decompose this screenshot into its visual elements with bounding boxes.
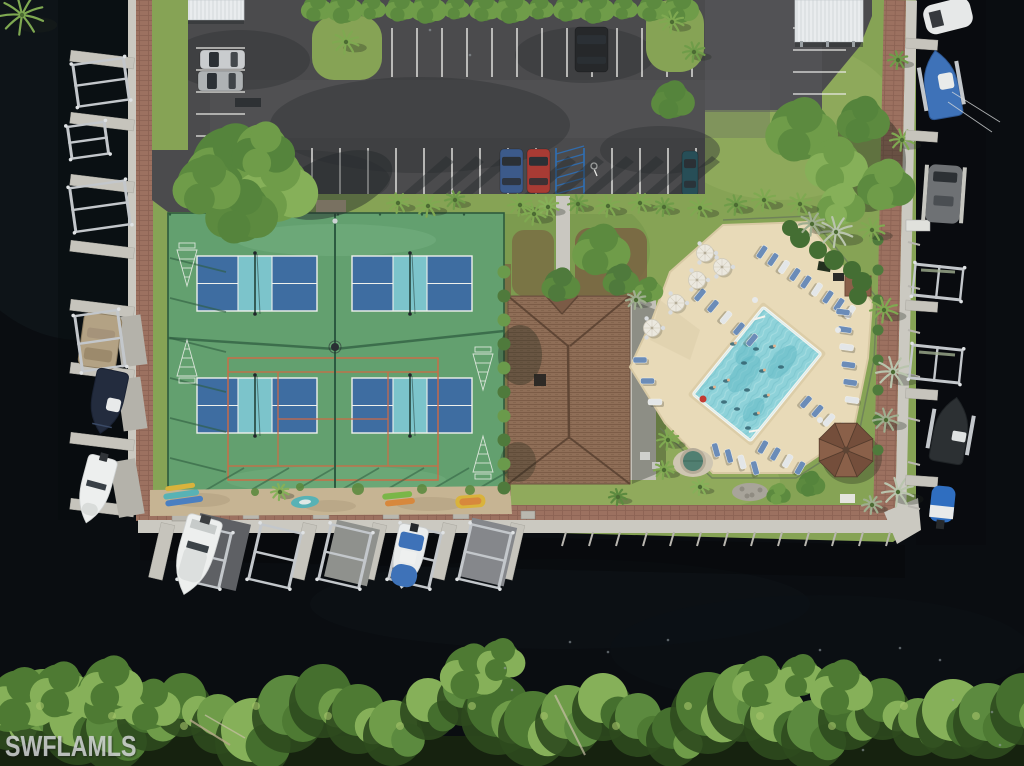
side-table — [752, 297, 758, 303]
fence-post — [169, 213, 171, 215]
canopy — [532, 7, 544, 19]
carport-leg — [852, 41, 855, 47]
palm-crown — [616, 495, 620, 499]
net-post — [408, 434, 412, 438]
hedge-bush — [873, 445, 884, 456]
car-body — [198, 71, 243, 91]
swimmer-head — [767, 394, 770, 397]
canopy — [801, 483, 814, 496]
palm-crown — [518, 203, 522, 207]
palm-crown — [734, 203, 738, 207]
palm-crown — [896, 58, 900, 62]
canopy — [558, 7, 572, 21]
canopy — [831, 183, 855, 207]
water-speck — [819, 649, 822, 652]
car-windshield — [209, 52, 219, 67]
car-rear-glass — [231, 52, 238, 67]
canopy — [184, 184, 215, 215]
canopy — [785, 675, 807, 697]
pickleball-court — [352, 373, 472, 438]
swimmer — [741, 361, 747, 365]
canopy — [582, 249, 608, 275]
main-ridge — [568, 345, 569, 439]
canopy — [218, 211, 251, 244]
patio-chair — [697, 241, 701, 245]
pickleball-court — [352, 251, 472, 316]
dock-finger — [905, 475, 938, 487]
carport-leg — [826, 41, 829, 47]
palm-crown — [891, 370, 895, 374]
canopy — [491, 638, 515, 662]
clubhouse-roof — [498, 296, 666, 484]
canopy — [821, 687, 850, 716]
swimmer — [745, 426, 751, 430]
fence-post — [379, 213, 381, 215]
carport-roof — [795, 0, 863, 42]
palm-crown — [662, 468, 666, 472]
chair-body — [641, 378, 655, 384]
hedge-bush — [498, 386, 511, 399]
brick-path-west — [136, 0, 153, 510]
water-speck — [952, 699, 955, 702]
swimmer — [734, 407, 740, 411]
umbrella-pole — [675, 302, 678, 305]
swimmer-body — [741, 361, 747, 365]
canopy-highlight — [900, 702, 908, 710]
aerial-photo-canvas: SWFLAMLS — [0, 0, 1024, 766]
palm-crown — [426, 204, 430, 208]
hedge-bush — [498, 482, 511, 495]
canopy — [805, 471, 819, 485]
patio-chair — [661, 326, 665, 330]
lift-bunk — [921, 270, 955, 272]
canopy — [548, 284, 566, 302]
water-speck — [939, 659, 942, 662]
net-post — [408, 373, 412, 377]
side-table — [835, 327, 841, 333]
patio-chair — [644, 316, 648, 320]
canopy — [825, 204, 847, 226]
palm-crown — [698, 206, 702, 210]
swimmer-head — [734, 342, 737, 345]
water-speck — [511, 689, 514, 692]
patio-chair — [706, 278, 710, 282]
water-speck — [569, 641, 572, 644]
swimmer — [744, 388, 750, 392]
canopy — [98, 655, 129, 686]
palm-crown — [870, 503, 874, 507]
canopy — [306, 7, 320, 21]
palm-crown — [692, 50, 696, 54]
silver-car — [198, 71, 243, 91]
canopy — [139, 679, 168, 708]
hedge-bush — [498, 458, 511, 471]
car-body — [500, 149, 523, 193]
patio-chair — [689, 287, 693, 291]
swimmer — [778, 365, 784, 369]
palm-crown — [634, 298, 638, 302]
rock — [740, 487, 745, 492]
car-windshield — [684, 159, 696, 168]
canopy-highlight — [396, 722, 404, 730]
net-post — [408, 251, 412, 255]
canopy — [874, 159, 903, 188]
palm-crown — [900, 138, 904, 142]
fence-post — [421, 213, 423, 215]
hedge-bush — [873, 385, 884, 396]
palm-crown — [278, 490, 282, 494]
palm-crown — [698, 485, 702, 489]
palm-crown — [606, 204, 610, 208]
lounge-chair — [641, 378, 657, 386]
canopy — [474, 7, 488, 21]
canopy-highlight — [36, 702, 44, 710]
canopy — [448, 7, 460, 19]
rock-bed — [732, 483, 768, 501]
dark-suv — [575, 27, 608, 72]
palm-crown — [882, 308, 886, 312]
lounge-chair — [648, 399, 664, 407]
canopy — [192, 154, 226, 188]
hedge-bush — [873, 325, 884, 336]
net-post — [408, 312, 412, 316]
court-light — [332, 218, 337, 223]
dock-finger — [905, 38, 938, 50]
pontoon-boat — [921, 164, 967, 225]
mls-watermark: SWFLAMLS — [5, 731, 136, 764]
swimmer-body — [734, 407, 740, 411]
palm-crown — [810, 222, 814, 226]
console-cover — [937, 72, 955, 90]
ac-unit — [640, 452, 650, 460]
canopy — [609, 279, 626, 296]
canopy-highlight — [468, 702, 476, 710]
palm-crown — [453, 198, 457, 202]
canopy — [485, 659, 507, 681]
palm-crown — [884, 418, 888, 422]
rock — [745, 494, 750, 499]
dock-finger — [905, 388, 938, 400]
hedge-bush — [824, 250, 844, 270]
swimmer-body — [744, 388, 750, 392]
palm-crown — [396, 201, 400, 205]
net-post — [253, 251, 257, 255]
canopy-highlight — [756, 712, 764, 720]
car-body — [527, 149, 550, 193]
car-body — [200, 50, 245, 69]
swimmer-head — [713, 386, 716, 389]
beach-shrub — [352, 483, 364, 495]
canopy-highlight — [324, 712, 332, 720]
canopy — [643, 277, 657, 291]
water-speck — [667, 639, 670, 642]
canopy — [364, 7, 376, 19]
dock-finger — [905, 130, 938, 142]
rock — [750, 493, 755, 498]
net-post — [253, 434, 257, 438]
car-rear-glass — [577, 57, 606, 64]
palm-crown — [896, 490, 900, 494]
swimmer-head — [763, 369, 766, 372]
patio-chair — [644, 335, 648, 339]
car-rear-glass — [502, 178, 521, 185]
canopy-highlight — [612, 722, 620, 730]
canopy — [451, 671, 480, 700]
canopy — [242, 149, 271, 178]
canopy-highlight — [108, 712, 116, 720]
aerial-scene — [0, 0, 1024, 766]
swimmer-head — [773, 345, 776, 348]
court-fixture — [331, 343, 339, 351]
car-rear-glass — [229, 73, 236, 89]
canopy — [771, 494, 782, 505]
patio-chair — [689, 268, 693, 272]
canopy — [846, 119, 870, 143]
patio-chair — [697, 260, 701, 264]
beach-shrub — [251, 488, 259, 496]
fence-post — [463, 213, 465, 215]
palm-crown — [798, 202, 802, 206]
canopy — [250, 121, 281, 152]
canopy — [791, 654, 815, 678]
canopy — [749, 656, 778, 685]
car-body — [575, 27, 608, 72]
canopy-highlight — [684, 702, 692, 710]
hedge-bush — [498, 410, 511, 423]
canopy — [664, 80, 686, 102]
hedge-bush — [498, 266, 511, 279]
water-speck — [991, 711, 994, 714]
patio-chair — [714, 255, 718, 259]
water-speck — [862, 749, 865, 752]
palm-crown — [638, 201, 642, 205]
canopy — [659, 99, 679, 119]
canopy — [867, 184, 893, 210]
canopy — [616, 7, 628, 19]
canopy — [91, 683, 120, 712]
lounge-chair — [633, 357, 649, 365]
canopy — [333, 7, 350, 24]
canopy — [774, 483, 786, 495]
pickleball-court — [197, 251, 317, 316]
canopy — [417, 7, 434, 24]
swimmer-head — [757, 412, 760, 415]
pickleball-court-complex — [168, 213, 514, 505]
palm-crown — [666, 438, 670, 442]
water-speck — [899, 647, 902, 650]
water-speck — [607, 651, 610, 654]
carport-shadow — [186, 20, 244, 24]
palm-crown — [670, 20, 674, 24]
hedge-bush — [873, 265, 884, 276]
chair-body — [633, 357, 647, 363]
tree-shadow-on-roof — [498, 325, 542, 385]
patio-chair — [714, 251, 718, 255]
chair-body — [648, 399, 662, 405]
umbrella-pole — [696, 279, 699, 282]
dock-box — [840, 494, 855, 503]
side-table — [817, 417, 823, 423]
canopy — [828, 659, 859, 690]
canopy — [553, 267, 572, 286]
swimmer-body — [745, 426, 751, 430]
canopy — [823, 136, 854, 167]
patio-chair — [668, 310, 672, 314]
water-speck — [469, 54, 472, 57]
dock-finger — [905, 300, 938, 312]
car-rear-glass — [684, 181, 696, 188]
canopy — [778, 129, 811, 162]
umbrella-pole — [651, 327, 654, 330]
net-post — [253, 373, 257, 377]
dock-box — [906, 220, 930, 231]
palm-crown — [546, 205, 550, 209]
car-windshield — [207, 73, 217, 89]
palm-crown — [662, 205, 666, 209]
canopy — [613, 264, 631, 282]
canopy — [132, 704, 158, 730]
patio-chair — [714, 274, 718, 278]
palm-crown — [870, 228, 874, 232]
canopy — [642, 7, 656, 21]
hedge-bush — [809, 241, 827, 259]
outboard-motor — [936, 520, 945, 530]
canopy-highlight — [180, 722, 188, 730]
palm-crown — [532, 212, 536, 216]
umbrella-pole — [704, 252, 707, 255]
water-speck — [429, 29, 432, 32]
canopy — [852, 96, 878, 122]
canopy — [501, 7, 518, 24]
canopy-highlight — [252, 702, 260, 710]
grass-strip — [152, 0, 188, 150]
boat-stern — [929, 505, 954, 519]
swimmer-body — [778, 365, 784, 369]
car-rear-glass — [529, 178, 548, 185]
hedge-bush — [498, 338, 511, 351]
gazebo-finial — [843, 447, 850, 454]
patio-chair — [685, 301, 689, 305]
hedge-bush — [782, 220, 798, 236]
outboard-motor — [409, 523, 418, 532]
palm-crown — [762, 198, 766, 202]
teal-car — [682, 151, 698, 196]
umbrella-pole — [721, 266, 724, 269]
carport-roof — [186, 0, 244, 20]
silver-car — [200, 50, 245, 69]
pickleball-court — [197, 373, 317, 438]
water-speck — [999, 744, 1002, 747]
palm-crown — [834, 230, 838, 234]
dinghy — [455, 494, 486, 509]
canopy — [787, 97, 823, 133]
pool-equipment — [833, 273, 844, 281]
car-windshield — [502, 157, 521, 166]
car-windshield — [577, 35, 606, 44]
hedge-bush — [498, 434, 511, 447]
patio-chair — [668, 291, 672, 295]
hedge-bush — [849, 287, 867, 305]
car-windshield — [529, 157, 548, 166]
carport-leg — [800, 41, 803, 47]
canopy-highlight — [972, 712, 980, 720]
bench — [235, 98, 261, 107]
canopy — [41, 689, 70, 718]
swimmer — [721, 400, 727, 404]
beach-shrub — [296, 483, 304, 491]
blue-car — [500, 149, 523, 193]
palm-crown — [344, 40, 348, 44]
hedge-bush — [498, 290, 511, 303]
canopy-highlight — [540, 712, 548, 720]
beach-shrub — [465, 485, 475, 495]
hedge-bush — [498, 314, 511, 327]
palm-crown — [20, 13, 24, 17]
red-car — [527, 149, 550, 193]
pontoon-seats — [933, 171, 958, 183]
patio-chair — [731, 265, 735, 269]
net-post — [253, 312, 257, 316]
beach-shrub — [417, 484, 427, 494]
swimmer-head — [727, 379, 730, 382]
dock-box — [521, 511, 535, 519]
rock — [758, 488, 763, 493]
swimmer-body — [753, 347, 759, 351]
canopy — [48, 661, 79, 692]
canopy — [589, 224, 618, 253]
canopy — [390, 7, 404, 21]
swimmer-body — [721, 400, 727, 404]
water-speck — [504, 667, 507, 670]
canopy-highlight — [828, 722, 836, 730]
canopy — [742, 681, 768, 707]
palm-crown — [576, 202, 580, 206]
pool-float — [700, 396, 707, 403]
pontoon-console — [933, 195, 954, 206]
canopy — [585, 7, 602, 24]
car-body — [682, 151, 698, 196]
hedge-bush — [498, 362, 511, 375]
swimmer — [753, 347, 759, 351]
